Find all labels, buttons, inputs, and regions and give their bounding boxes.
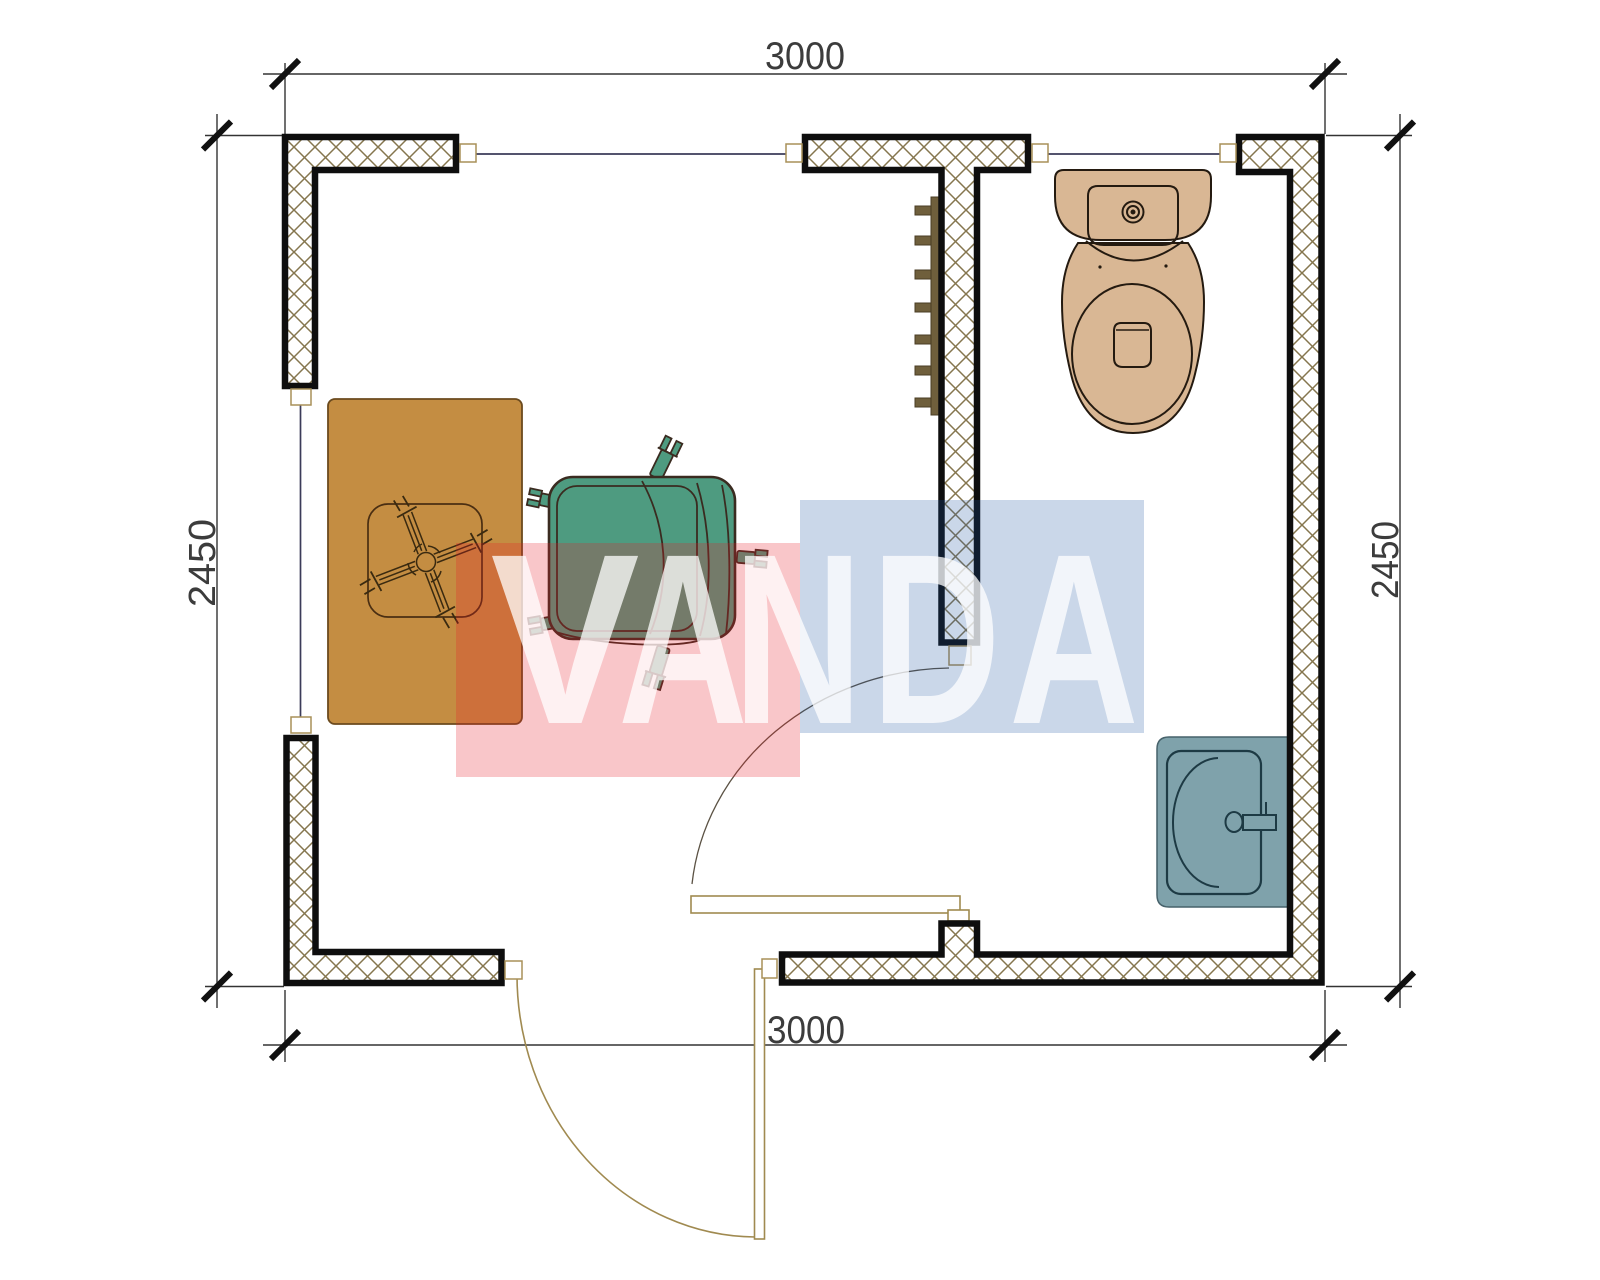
svg-text:3000: 3000: [767, 1009, 845, 1052]
svg-text:3000: 3000: [765, 35, 845, 78]
svg-text:V: V: [491, 504, 640, 775]
svg-text:2450: 2450: [182, 519, 224, 607]
svg-text:2450: 2450: [1365, 521, 1407, 599]
svg-text:A: A: [618, 504, 748, 776]
svg-text:NDA: NDA: [733, 504, 1147, 776]
